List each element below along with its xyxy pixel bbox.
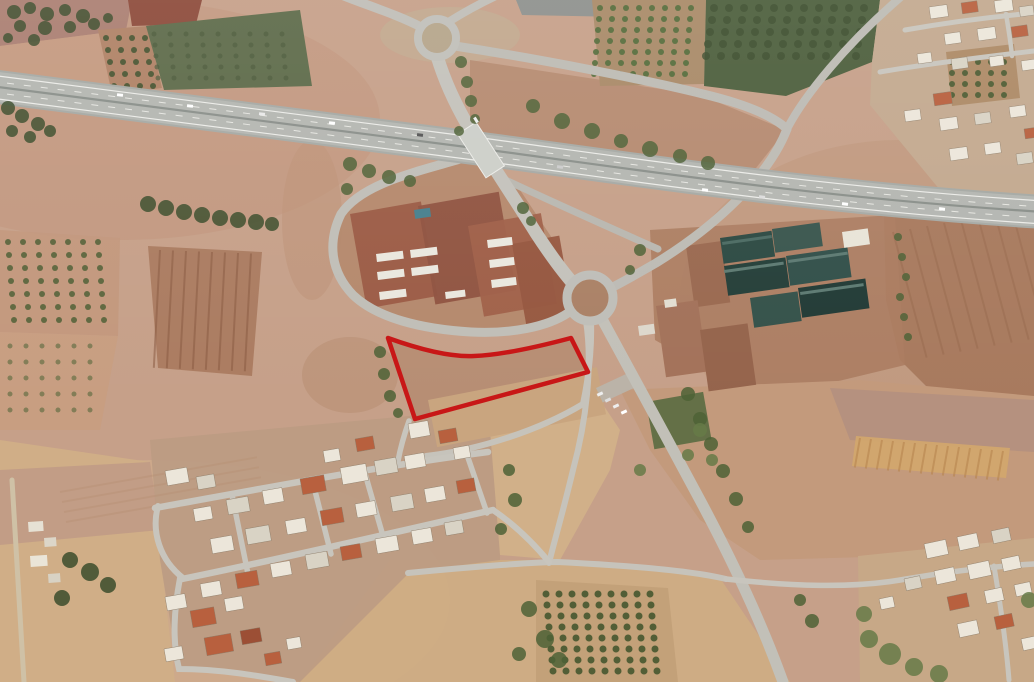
- aerial-photo: [0, 0, 1034, 682]
- satellite-image: [0, 0, 1034, 682]
- haze-overlay: [0, 0, 1034, 682]
